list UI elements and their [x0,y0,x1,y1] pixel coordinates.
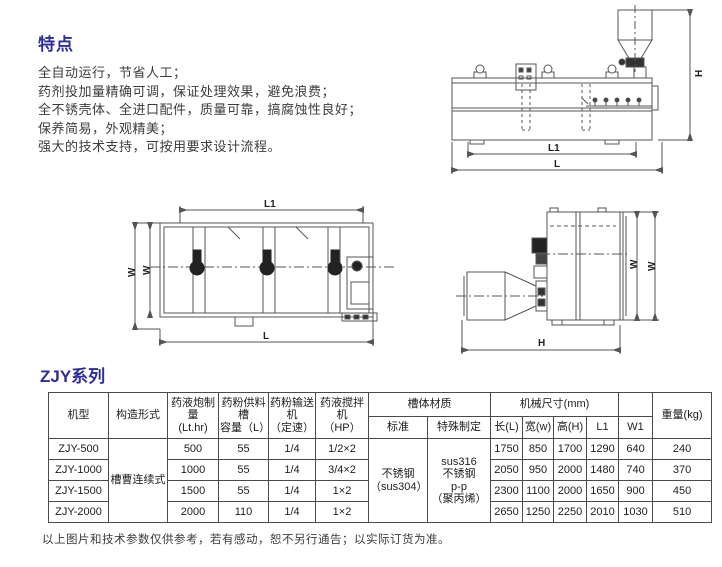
cell-tank: 55 [219,481,269,502]
cell-weight: 370 [653,460,712,481]
cell-l1: 1290 [587,439,619,460]
cell-w1: 900 [619,481,653,502]
cell-special-material: sus316 不锈钢 p-p （聚丙烯） [428,439,491,523]
col-header-l1: L1 [587,417,619,439]
datasheet-page: 特点 全自动运行，节省人工； 药剂投加量精确可调，保证处理效果，避免浪费； 全不… [0,0,722,567]
cell-feeder: 1/4 [269,460,316,481]
feature-line: 全自动运行，节省人工； [38,64,438,83]
col-header-length: 长(L) [491,417,523,439]
col-header-powder-feeder: 药粉输送 机 （定速） [269,393,316,439]
cell-capacity: 1000 [168,460,219,481]
feature-line: 保养简易，外观精美； [38,120,438,139]
cell-w1: 640 [619,439,653,460]
cell-weight: 510 [653,502,712,523]
cell-weight: 240 [653,439,712,460]
cell-construction: 槽曹连续式 [109,439,168,523]
cell-feeder: 1/4 [269,439,316,460]
cell-height: 2000 [554,481,587,502]
col-header-weight: 重量(kg) [653,393,712,439]
cell-height: 2000 [554,460,587,481]
dim-label-h: H [694,70,705,77]
tank-end [547,212,620,320]
features-list: 全自动运行，节省人工； 药剂投加量精确可调，保证处理效果，避免浪费； 全不锈壳体… [38,64,438,157]
feature-line: 药剂投加量精确可调，保证处理效果，避免浪费； [38,83,438,102]
cell-standard-material: 不锈钢 （sus304） [369,439,428,523]
features-title: 特点 [38,30,74,55]
dim-label-w-outer: W [647,261,658,271]
cell-tank: 110 [219,502,269,523]
cell-length: 1750 [491,439,523,460]
cell-capacity: 1500 [168,481,219,502]
dim-label-l: L [554,159,560,170]
dim-label-l1: L1 [264,199,276,210]
cell-mixer: 1×2 [316,481,369,502]
col-header-dimensions: 机械尺寸(mm) [491,393,619,417]
cell-mixer: 3/4×2 [316,460,369,481]
cell-length: 2650 [491,502,523,523]
cell-width: 1250 [523,502,554,523]
cell-width: 950 [523,460,554,481]
dim-label-w-inner: W [142,265,153,275]
cell-length: 2050 [491,460,523,481]
dim-label-l1: L1 [548,143,560,154]
cell-mixer: 1×2 [316,502,369,523]
feature-line: 全不锈壳体、全进口配件，质量可靠，搞腐蚀性良好； [38,101,438,120]
cell-height: 1700 [554,439,587,460]
tank-body [452,78,652,140]
dim-label-l: L [263,331,269,342]
col-header-standard: 标准 [369,417,428,439]
col-header-powder-tank: 药粉供料 槽 容量（L） [219,393,269,439]
series-title: ZJY系列 [40,362,105,387]
cell-width: 850 [523,439,554,460]
cell-tank: 55 [219,460,269,481]
feeder-motor-icon [532,238,547,278]
cell-width: 1100 [523,481,554,502]
mixer-motor-icon [474,65,618,78]
cell-capacity: 500 [168,439,219,460]
cell-tank: 55 [219,439,269,460]
col-header-tank-material: 槽体材质 [369,393,491,417]
cell-model: ZJY-1000 [49,460,109,481]
col-header-construction: 构造形式 [109,393,168,439]
plan-view-drawing: L1 W W L [92,194,407,354]
cell-mixer: 1/2×2 [316,439,369,460]
col-header-height: 高(H) [554,417,587,439]
col-header-dosing-capacity: 药液炮制 量 (Lt.hr) [168,393,219,439]
dim-label-w-outer: W [127,267,138,277]
cell-l1: 2010 [587,502,619,523]
col-header-width: 宽(w) [523,417,554,439]
cell-l1: 1650 [587,481,619,502]
end-view-drawing: W W H [446,196,696,364]
col-header-w1: W1 [619,417,653,439]
dim-label-h: H [538,338,545,349]
cell-model: ZJY-500 [49,439,109,460]
spec-table: 机型 构造形式 药液炮制 量 (Lt.hr) 药粉供料 槽 容量（L） 药粉输送… [48,392,712,523]
cell-feeder: 1/4 [269,481,316,502]
cell-l1: 1480 [587,460,619,481]
cell-w1: 1030 [619,502,653,523]
col-header-mixer: 药液搅拌 机 （HP） [316,393,369,439]
dim-label-w-inner: W [629,259,640,269]
col-header-w1-spacer [619,393,653,417]
side-view-drawing: L1 L H [440,2,718,184]
cell-capacity: 2000 [168,502,219,523]
col-header-model: 机型 [49,393,109,439]
disclaimer-footnote: 以上图片和技术参数仅供参考，若有感动，恕不另行通告；以实际订货为准。 [42,531,682,547]
cell-w1: 740 [619,460,653,481]
cell-length: 2300 [491,481,523,502]
cell-feeder: 1/4 [269,502,316,523]
valve-icons [582,98,641,106]
mixer-icons [190,250,342,275]
cell-model: ZJY-2000 [49,502,109,523]
feature-line: 强大的技术支持，可按用要求设计流程。 [38,138,438,157]
col-header-special: 特殊制定 [428,417,491,439]
table-row: ZJY-500 槽曹连续式 500 55 1/4 1/2×2 不锈钢 （sus3… [49,439,712,460]
cell-model: ZJY-1500 [49,481,109,502]
cell-height: 2250 [554,502,587,523]
cell-weight: 450 [653,481,712,502]
